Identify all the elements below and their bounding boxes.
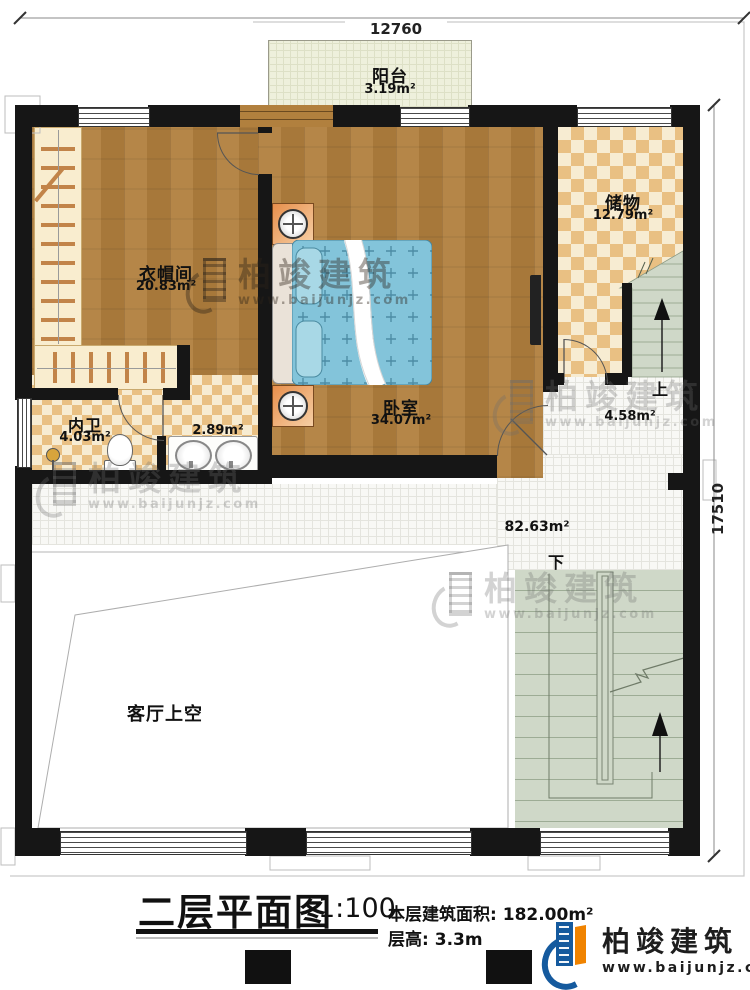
wall (15, 828, 60, 856)
closet-rail (58, 130, 59, 344)
wall (15, 105, 32, 398)
hall-area-label: 82.63m² (487, 519, 587, 535)
nightstand-top (272, 203, 314, 245)
main-staircase (515, 570, 683, 828)
window (306, 831, 472, 855)
balcony-area: 3.19m² (340, 82, 440, 97)
wall (622, 283, 632, 377)
bedroom-area: 34.07m² (351, 413, 451, 428)
stair-down-label: 下 (536, 549, 576, 573)
wall (470, 828, 540, 856)
sink-icon (175, 440, 212, 471)
storage-area: 12.79m² (573, 208, 673, 223)
wall (330, 105, 400, 127)
living-room-void-outline (38, 545, 508, 828)
window (577, 107, 672, 127)
sink-area-label: 2.89m² (168, 423, 268, 438)
lamp-icon (278, 391, 308, 421)
floor-height-line: 层高: 3.3m (388, 925, 483, 950)
sink-icon (215, 440, 252, 471)
company-name: 柏竣建筑 (602, 920, 750, 960)
closet-rail (37, 368, 176, 369)
storage-floor (558, 127, 683, 377)
void-label: 客厅上空 (95, 700, 235, 726)
wall (556, 373, 564, 385)
nightstand-bottom (272, 385, 314, 427)
stair-up-label: 上 (640, 376, 680, 400)
window (400, 107, 470, 127)
window (60, 831, 247, 855)
company-website: www.baijunjz.com (602, 960, 750, 976)
floor-height-value: 3.3m (435, 930, 483, 950)
company-logo-icon (542, 920, 596, 982)
window (78, 107, 150, 127)
lamp-icon (278, 209, 308, 239)
wall (258, 455, 497, 478)
bathroom-area: 4.03m² (35, 430, 135, 445)
top-dimension: 12760 (345, 20, 447, 38)
window (17, 398, 32, 468)
wall (543, 127, 558, 392)
wardrobe-left (34, 127, 82, 347)
wall (683, 105, 700, 856)
bed (292, 240, 432, 385)
floor-area-label: 本层建筑面积: (388, 905, 497, 925)
tv-icon (530, 275, 541, 345)
sink-counter (168, 436, 258, 472)
balcony-sliding-door (237, 105, 336, 127)
wall (15, 466, 32, 856)
wall (157, 436, 166, 470)
title-underline-thin (136, 937, 378, 939)
title-underline (136, 929, 378, 934)
hall-floor (32, 484, 508, 545)
bed-headboard (272, 243, 294, 384)
floor-plan: 12760 17510 (0, 0, 750, 990)
wall (245, 828, 306, 856)
window (540, 831, 670, 855)
column-marker (486, 950, 532, 984)
wall (468, 105, 577, 127)
wall (177, 345, 190, 395)
wall (258, 127, 272, 133)
title-block: 二层平面图 1:100 本层建筑面积: 182.00m² 层高: 3.3m 柏竣… (0, 880, 750, 990)
wardrobe-bottom (34, 345, 179, 390)
cloakroom-area: 20.83m² (116, 279, 216, 294)
page-title: 二层平面图 (138, 882, 333, 936)
column-marker (245, 950, 291, 984)
landing-area-label: 4.58m² (580, 409, 680, 424)
wall (15, 470, 272, 484)
right-dimension: 17510 (709, 467, 727, 551)
wall (148, 105, 237, 127)
plan-scale: 1:100 (318, 893, 396, 924)
wall (668, 473, 683, 490)
watermark-logo-icon (432, 572, 476, 628)
floor-height-label: 层高: (388, 930, 429, 950)
wall (668, 828, 700, 856)
